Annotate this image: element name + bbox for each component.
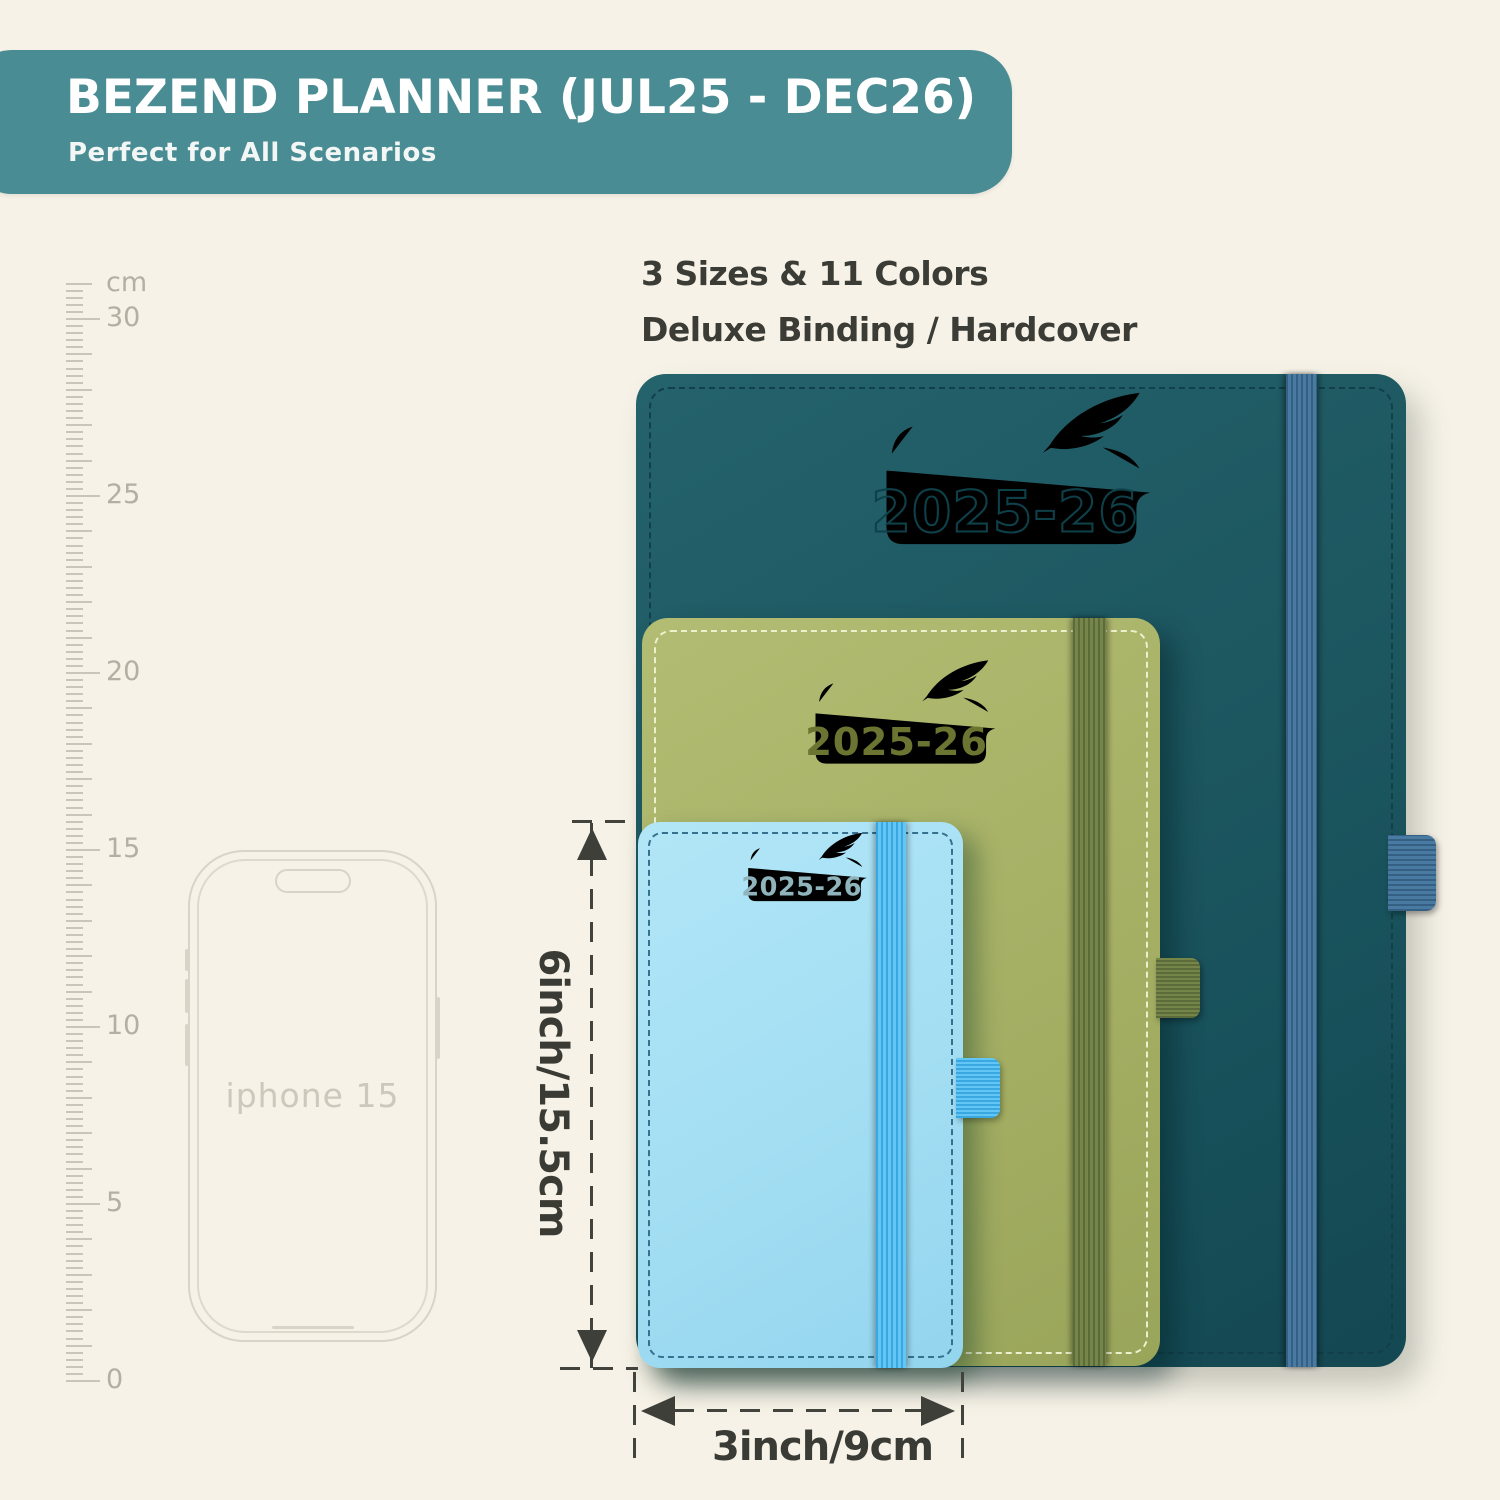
banner-subtitle: Perfect for All Scenarios xyxy=(68,138,437,168)
ruler-tick xyxy=(66,778,92,780)
ruler-tick xyxy=(66,920,92,922)
ruler-tick xyxy=(66,1217,83,1219)
ruler-tick xyxy=(66,523,83,525)
ruler-tick xyxy=(66,1338,83,1340)
ruler-tick xyxy=(66,792,83,794)
planner-medium-pen-loop xyxy=(1156,958,1200,1018)
ruler-tick xyxy=(66,807,83,809)
ruler-tick xyxy=(66,1040,83,1042)
ruler-tick xyxy=(66,368,83,370)
ruler-tick xyxy=(66,863,83,865)
ruler-tick xyxy=(66,1302,83,1304)
ruler-number-label: 5 xyxy=(106,1187,123,1218)
ruler-tick xyxy=(66,559,83,561)
ruler-tick xyxy=(66,573,83,575)
ruler-tick xyxy=(66,814,92,816)
ruler-tick xyxy=(66,665,83,667)
ruler: cm302520151050 xyxy=(60,258,180,1408)
ruler-tick xyxy=(66,304,83,306)
ruler-tick xyxy=(66,870,83,872)
ruler-tick xyxy=(66,1231,83,1233)
height-arrow-down-icon xyxy=(577,1330,607,1362)
ruler-tick xyxy=(66,1295,83,1297)
ruler-tick xyxy=(66,948,83,950)
ruler-tick xyxy=(66,1153,83,1155)
ruler-tick xyxy=(66,1189,83,1191)
width-dimension-label: 3inch/9cm xyxy=(712,1424,933,1470)
planner-medium-elastic-band xyxy=(1073,618,1106,1366)
ruler-number-label: 0 xyxy=(106,1364,123,1395)
ruler-tick xyxy=(66,353,92,355)
ruler-tick xyxy=(66,389,92,391)
ruler-tick xyxy=(66,587,83,589)
feature-line-binding: Deluxe Binding / Hardcover xyxy=(641,302,1137,358)
product-image: BEZEND PLANNER (JUL25 - DEC26) Perfect f… xyxy=(0,0,1500,1500)
ruler-tick xyxy=(66,438,83,440)
iphone-power-button xyxy=(436,997,440,1059)
ruler-tick xyxy=(66,1281,83,1283)
ruler-tick xyxy=(66,424,92,426)
ruler-tick xyxy=(66,1182,83,1184)
ruler-tick xyxy=(66,332,83,334)
ruler-tick xyxy=(66,1026,100,1028)
ruler-tick xyxy=(66,707,92,709)
ruler-tick xyxy=(66,290,83,292)
ruler-tick xyxy=(66,1132,92,1134)
ruler-tick xyxy=(66,608,83,610)
ruler-tick xyxy=(66,906,83,908)
ruler-tick xyxy=(66,445,83,447)
planner-small-stitching xyxy=(648,832,953,1358)
planner-large-year: 2025-26 xyxy=(871,480,1139,546)
planner-small-logo: 2025-26 xyxy=(734,826,876,908)
ruler-tick xyxy=(66,410,83,412)
ruler-tick xyxy=(66,934,83,936)
ruler-tick xyxy=(66,849,100,851)
ruler-tick xyxy=(66,396,83,398)
ruler-tick xyxy=(66,1168,92,1170)
ruler-tick xyxy=(66,431,83,433)
banner-title: BEZEND PLANNER (JUL25 - DEC26) xyxy=(66,70,976,125)
ruler-tick xyxy=(66,686,83,688)
iphone-speaker-line xyxy=(272,1326,354,1329)
ruler-tick xyxy=(66,1061,92,1063)
planner-large-logo: 2025-26 xyxy=(855,378,1170,559)
ruler-tick xyxy=(66,1260,83,1262)
ruler-tick xyxy=(66,1323,83,1325)
planner-small-pen-loop xyxy=(956,1058,1000,1118)
ruler-number-label: 15 xyxy=(106,833,140,864)
planner-large-pen-loop xyxy=(1388,835,1436,911)
width-dimension-line xyxy=(674,1409,922,1412)
ruler-tick xyxy=(66,403,83,405)
ruler-tick xyxy=(66,1253,83,1255)
ruler-tick xyxy=(66,884,92,886)
iphone-outline: iphone 15 xyxy=(188,850,437,1342)
ruler-tick xyxy=(66,615,83,617)
planner-medium-year: 2025-26 xyxy=(805,720,988,765)
ruler-tick xyxy=(66,1345,92,1347)
ruler-tick xyxy=(66,785,83,787)
ruler-tick xyxy=(66,566,92,568)
ruler-tick xyxy=(66,453,83,455)
ruler-tick xyxy=(66,495,100,497)
ruler-tick xyxy=(66,1076,83,1078)
ruler-tick xyxy=(66,481,83,483)
ruler-unit-label: cm xyxy=(106,267,147,298)
ruler-tick xyxy=(66,1054,83,1056)
ruler-tick xyxy=(66,1161,83,1163)
ruler-tick xyxy=(66,1047,83,1049)
ruler-tick xyxy=(66,1090,83,1092)
ruler-tick xyxy=(66,594,83,596)
height-dimension-bottom-tick xyxy=(560,1367,638,1370)
ruler-number-label: 10 xyxy=(106,1010,140,1041)
feature-line-sizes: 3 Sizes & 11 Colors xyxy=(641,246,1137,302)
ruler-tick xyxy=(66,1125,83,1127)
ruler-tick xyxy=(66,821,83,823)
ruler-tick xyxy=(66,764,83,766)
ruler-tick xyxy=(66,297,83,299)
ruler-tick xyxy=(66,530,92,532)
iphone-volume-up-button xyxy=(185,979,189,1013)
ruler-tick xyxy=(66,1267,83,1269)
ruler-tick xyxy=(66,679,83,681)
width-dimension-right-tick xyxy=(961,1372,964,1460)
ruler-tick xyxy=(66,856,83,858)
ruler-tick xyxy=(66,311,83,313)
ruler-tick xyxy=(66,1083,83,1085)
ruler-tick xyxy=(66,360,83,362)
ruler-tick xyxy=(66,991,92,993)
ruler-tick xyxy=(66,1373,83,1375)
planner-small: 2025-26 xyxy=(638,822,963,1368)
ruler-tick xyxy=(66,1104,83,1106)
ruler-tick xyxy=(66,382,83,384)
ruler-tick xyxy=(66,955,92,957)
ruler-tick xyxy=(66,941,83,943)
ruler-tick xyxy=(66,1111,83,1113)
ruler-tick xyxy=(66,325,83,327)
ruler-tick xyxy=(66,630,83,632)
ruler-number-label: 30 xyxy=(106,302,140,333)
iphone-label: iphone 15 xyxy=(190,1076,435,1115)
ruler-tick xyxy=(66,1359,83,1361)
ruler-tick xyxy=(66,736,83,738)
ruler-tick xyxy=(66,672,100,674)
ruler-tick xyxy=(66,1238,92,1240)
ruler-tick xyxy=(66,913,83,915)
ruler-tick xyxy=(66,729,83,731)
ruler-tick xyxy=(66,1366,83,1368)
ruler-tick xyxy=(66,417,83,419)
ruler-tick xyxy=(66,1139,83,1141)
ruler-tick xyxy=(66,962,83,964)
ruler-tick xyxy=(66,976,83,978)
ruler-tick xyxy=(66,1316,83,1318)
ruler-tick xyxy=(66,1146,83,1148)
ruler-tick xyxy=(66,537,83,539)
ruler-tick xyxy=(66,375,83,377)
ruler-tick xyxy=(66,927,83,929)
height-arrow-up-icon xyxy=(577,828,607,860)
ruler-tick xyxy=(66,771,83,773)
planner-medium-logo: 2025-26 xyxy=(794,650,1009,774)
height-dimension-top-tick xyxy=(572,820,638,823)
ruler-tick xyxy=(66,460,92,462)
ruler-tick xyxy=(66,1118,83,1120)
planner-small-elastic-band xyxy=(876,822,906,1368)
ruler-number-label: 25 xyxy=(106,479,140,510)
ruler-tick xyxy=(66,1309,92,1311)
ruler-tick xyxy=(66,318,100,320)
ruler-tick xyxy=(66,283,92,285)
ruler-tick xyxy=(66,1012,83,1014)
ruler-tick xyxy=(66,1005,83,1007)
ruler-tick xyxy=(66,722,83,724)
header-banner: BEZEND PLANNER (JUL25 - DEC26) Perfect f… xyxy=(0,50,1012,194)
width-dimension-left-tick xyxy=(633,1372,636,1460)
ruler-tick xyxy=(66,969,83,971)
ruler-tick xyxy=(66,580,83,582)
ruler-tick xyxy=(66,488,83,490)
ruler-tick xyxy=(66,1380,100,1382)
ruler-tick xyxy=(66,509,83,511)
ruler-tick xyxy=(66,1245,83,1247)
ruler-tick xyxy=(66,835,83,837)
ruler-tick xyxy=(66,998,83,1000)
width-arrow-right-icon xyxy=(921,1396,955,1426)
iphone-dynamic-island xyxy=(275,869,351,893)
ruler-number-label: 20 xyxy=(106,656,140,687)
ruler-tick xyxy=(66,984,83,986)
ruler-tick xyxy=(66,1203,100,1205)
ruler-tick xyxy=(66,1330,83,1332)
ruler-tick xyxy=(66,700,83,702)
ruler-tick xyxy=(66,828,83,830)
ruler-tick xyxy=(66,545,83,547)
width-arrow-left-icon xyxy=(641,1396,675,1426)
ruler-tick xyxy=(66,467,83,469)
iphone-mute-button xyxy=(185,949,189,971)
ruler-tick xyxy=(66,757,83,759)
ruler-tick xyxy=(66,1019,83,1021)
height-dimension-line xyxy=(590,823,593,1368)
ruler-tick xyxy=(66,502,83,504)
ruler-tick xyxy=(66,743,92,745)
ruler-tick xyxy=(66,1224,83,1226)
ruler-tick xyxy=(66,1097,92,1099)
ruler-tick xyxy=(66,516,83,518)
ruler-tick xyxy=(66,750,83,752)
ruler-tick xyxy=(66,637,92,639)
ruler-tick xyxy=(66,1274,92,1276)
ruler-tick xyxy=(66,842,83,844)
iphone-volume-down-button xyxy=(185,1024,189,1066)
height-dimension-label: 6inch/15.5cm xyxy=(530,949,576,1238)
ruler-tick xyxy=(66,658,83,660)
ruler-tick xyxy=(66,601,92,603)
ruler-tick xyxy=(66,1288,83,1290)
ruler-tick xyxy=(66,474,83,476)
ruler-tick xyxy=(66,899,83,901)
ruler-tick xyxy=(66,799,83,801)
feature-text: 3 Sizes & 11 Colors Deluxe Binding / Har… xyxy=(641,246,1137,358)
ruler-tick xyxy=(66,1175,83,1177)
ruler-tick xyxy=(66,714,83,716)
planner-small-year: 2025-26 xyxy=(741,872,862,902)
ruler-tick xyxy=(66,644,83,646)
ruler-tick xyxy=(66,339,83,341)
ruler-tick xyxy=(66,552,83,554)
ruler-tick xyxy=(66,1210,83,1212)
ruler-tick xyxy=(66,1196,83,1198)
ruler-tick xyxy=(66,346,83,348)
ruler-tick xyxy=(66,693,83,695)
planner-large-elastic-band xyxy=(1286,374,1317,1367)
ruler-tick xyxy=(66,622,83,624)
ruler-tick xyxy=(66,1068,83,1070)
ruler-tick xyxy=(66,651,83,653)
ruler-tick xyxy=(66,877,83,879)
ruler-tick xyxy=(66,1352,83,1354)
ruler-tick xyxy=(66,891,83,893)
ruler-tick xyxy=(66,1033,83,1035)
